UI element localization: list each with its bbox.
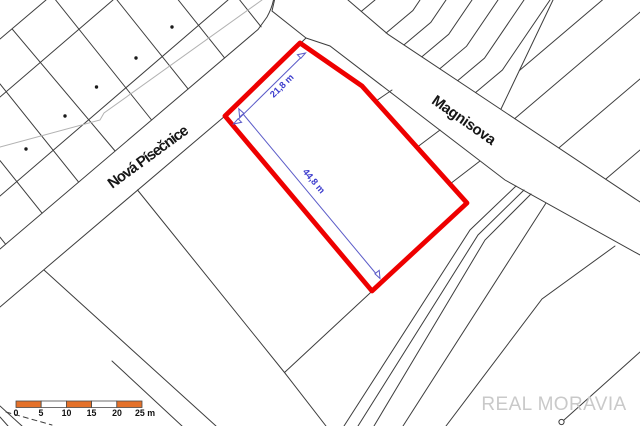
- svg-text:25 m: 25 m: [135, 408, 155, 418]
- svg-text:20: 20: [112, 408, 122, 418]
- svg-text:15: 15: [87, 408, 97, 418]
- svg-text:5: 5: [39, 408, 44, 418]
- svg-text:10: 10: [62, 408, 72, 418]
- svg-text:REAL MORAVIA: REAL MORAVIA: [481, 394, 626, 415]
- svg-text:0: 0: [14, 408, 19, 418]
